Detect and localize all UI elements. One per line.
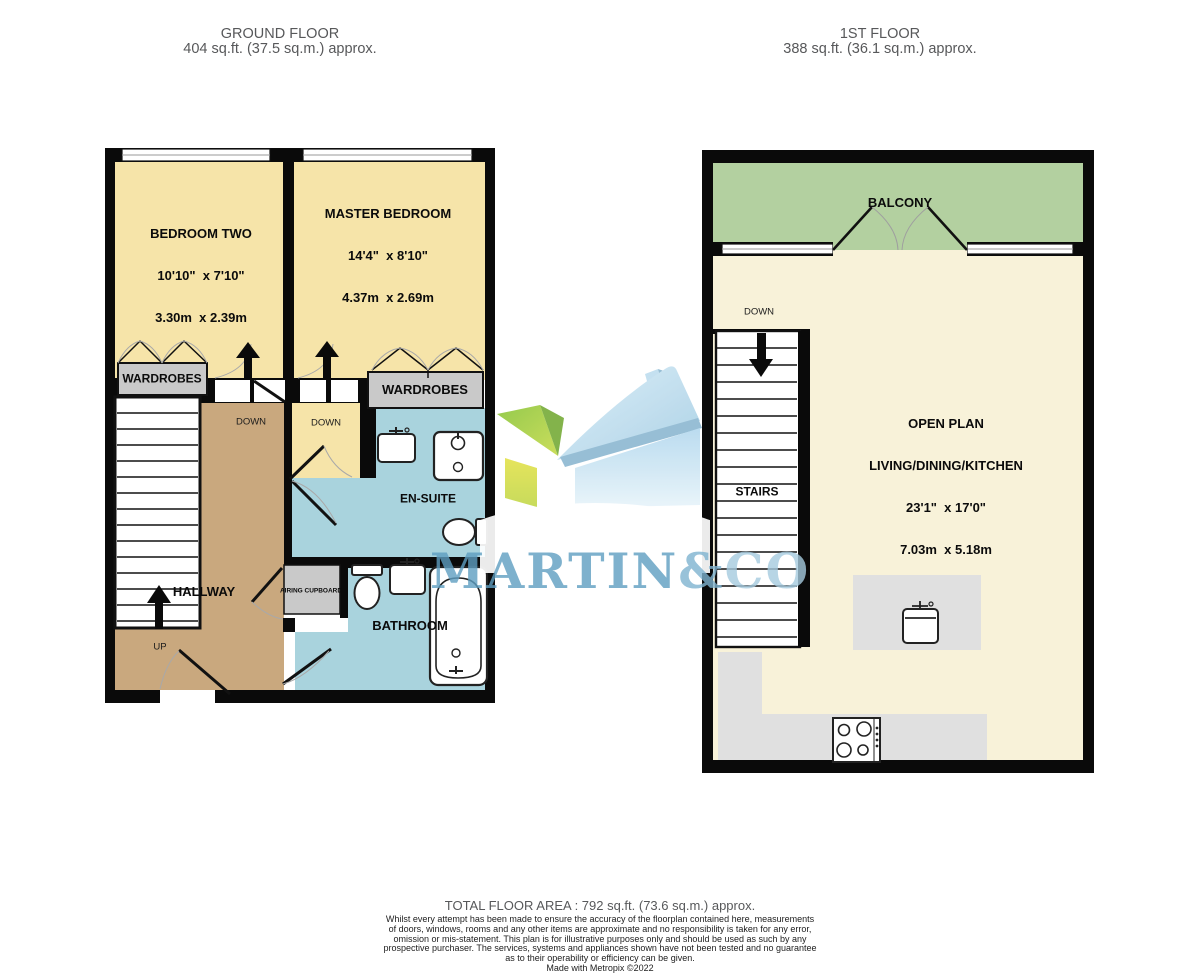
stairs-label: STAIRS [735, 486, 778, 499]
balcony-label: BALCONY [868, 196, 932, 210]
master-bedroom-label: MASTER BEDROOM 14'4" x 8'10" 4.37m x 2.6… [325, 179, 451, 333]
room-labels: BEDROOM TWO 10'10" x 7'10" 3.30m x 2.39m… [0, 0, 1200, 973]
floorplan-page: GROUND FLOOR 404 sq.ft. (37.5 sq.m.) app… [0, 0, 1200, 973]
open-plan-label: OPEN PLAN LIVING/DINING/KITCHEN 23'1" x … [869, 389, 1023, 585]
bathroom-label: BATHROOM [372, 619, 448, 633]
hallway-label: HALLWAY [173, 585, 235, 599]
airing-cupboard-label: AIRING CUPBOARD [280, 588, 342, 595]
down-hallway-label: DOWN [236, 417, 266, 428]
wardrobes-left-label: WARDROBES [122, 373, 201, 386]
en-suite-label: EN-SUITE [400, 493, 456, 506]
up-label: UP [153, 642, 166, 653]
down-landing-label: DOWN [311, 418, 341, 429]
bedroom-two-label: BEDROOM TWO 10'10" x 7'10" 3.30m x 2.39m [150, 199, 252, 353]
wardrobes-right-label: WARDROBES [382, 383, 468, 397]
down-first-floor-label: DOWN [744, 307, 774, 318]
